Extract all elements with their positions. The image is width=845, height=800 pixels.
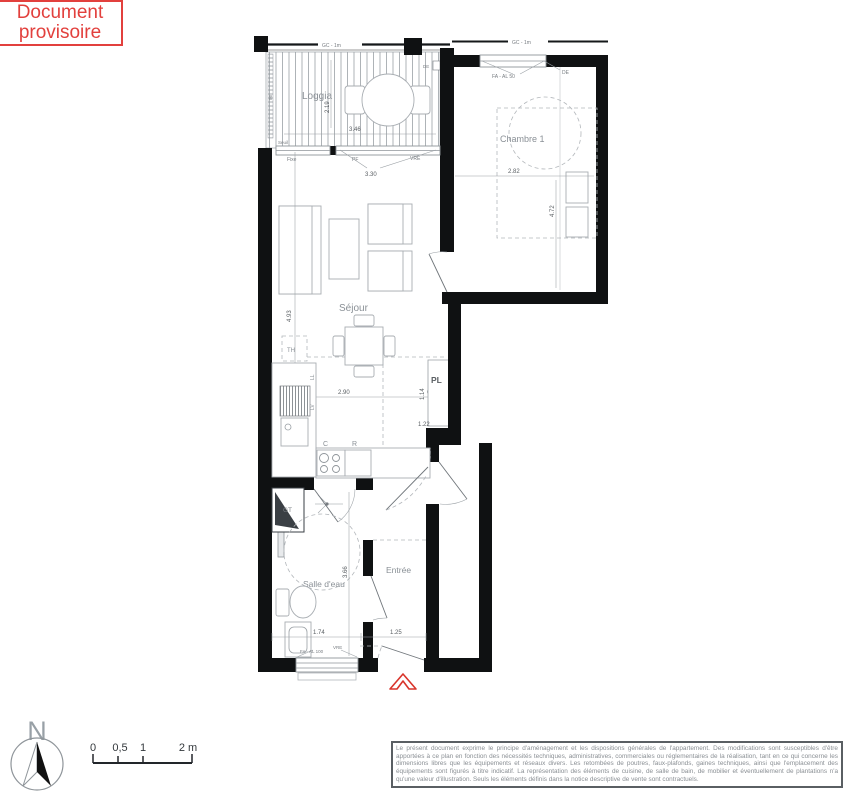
dim-sejour-height: 4.93 bbox=[287, 310, 293, 322]
sdb-window-label: FA - AL 100 bbox=[300, 649, 324, 654]
de-label-loggia: DE bbox=[423, 64, 429, 69]
dim-chambre-width: 2.82 bbox=[508, 169, 520, 175]
north-needle bbox=[37, 742, 51, 786]
guardrail-label-2: GC - 1m bbox=[512, 40, 531, 46]
window-sill bbox=[298, 673, 356, 680]
loggia: GC - 1m Loggia 2.19 3.46 Seuil 86 DE bbox=[256, 40, 450, 148]
fridge bbox=[345, 450, 371, 476]
room-label-loggia: Loggia bbox=[302, 91, 332, 102]
cooktop-label: C bbox=[323, 441, 328, 448]
technical-duct: GT bbox=[272, 488, 355, 532]
gt-label: GT bbox=[283, 507, 292, 514]
scale-2m: 2 m bbox=[179, 742, 197, 754]
dim-sdb-height: 3.66 bbox=[343, 566, 349, 578]
dining-chair bbox=[384, 336, 395, 356]
dining-chair bbox=[354, 315, 374, 326]
ll-label: LL bbox=[310, 374, 316, 380]
dining-chair bbox=[333, 336, 344, 356]
wardrobe bbox=[566, 207, 588, 237]
north-label: N bbox=[27, 716, 47, 746]
pl-label: PL bbox=[431, 375, 442, 385]
scale-bar: 0 0,5 1 2 m bbox=[90, 742, 197, 763]
entrance-arrow bbox=[390, 674, 416, 689]
chambre-window-label: FA - AL 50 bbox=[492, 74, 515, 80]
dim-chambre-height: 4.72 bbox=[550, 205, 556, 217]
room-label-entree: Entrée bbox=[386, 565, 411, 575]
vre-label: VRE bbox=[410, 156, 421, 162]
sdb-window bbox=[296, 658, 358, 672]
toilet-bowl bbox=[290, 586, 316, 618]
cooktop bbox=[317, 450, 345, 476]
coffee-table bbox=[329, 219, 359, 279]
scale-0: 0 bbox=[90, 742, 96, 754]
dim-pl-below: 1.22 bbox=[418, 422, 430, 428]
clearance-circle bbox=[509, 97, 581, 169]
scale-05: 0,5 bbox=[112, 742, 127, 754]
legal-disclaimer: Le présent document exprime le principe … bbox=[391, 741, 843, 788]
dim-sdb-width: 1.74 bbox=[313, 630, 325, 636]
washing-machine bbox=[280, 386, 310, 416]
armchair-seat bbox=[368, 251, 403, 291]
room-label-sejour: Séjour bbox=[339, 303, 369, 314]
vre-label-sdb: VRE bbox=[333, 645, 342, 650]
loggia-table bbox=[362, 74, 414, 126]
kitchen-sink bbox=[281, 418, 308, 446]
pf-label: PF bbox=[352, 157, 358, 163]
guardrail-label: GC - 1m bbox=[322, 43, 341, 49]
dining-table bbox=[345, 327, 383, 365]
dim-loggia-depth: 2.19 bbox=[325, 101, 331, 113]
armchair-seat bbox=[368, 204, 403, 244]
disclaimer-text: Le présent document exprime le principe … bbox=[396, 745, 838, 783]
dining-chair bbox=[354, 366, 374, 377]
north-compass: N bbox=[11, 716, 63, 790]
dim-pl-side: 1.14 bbox=[420, 388, 426, 400]
rail-height-label: 86 bbox=[268, 94, 273, 100]
chambre-1: FA - AL 50 DE Chambre 1 2.82 4.72 bbox=[429, 61, 597, 292]
th-label: TH bbox=[287, 348, 295, 354]
lv-label: LV bbox=[310, 404, 316, 410]
de-label: DE bbox=[562, 70, 570, 76]
kitchen: LL LV C R bbox=[272, 363, 430, 478]
room-label-chambre: Chambre 1 bbox=[500, 134, 545, 144]
floor-plan-svg: GC - 1m Loggia 2.19 3.46 Seuil 86 DE bbox=[0, 0, 845, 800]
seuil-label: Seuil bbox=[278, 140, 288, 145]
wardrobe bbox=[566, 172, 588, 203]
toilet-tank bbox=[276, 589, 289, 616]
floor-plan-page: Document provisoire GC - 1m bbox=[0, 0, 845, 800]
dim-kitchen-width: 2.90 bbox=[338, 390, 350, 396]
sofa-seat bbox=[279, 206, 312, 294]
dim-loggia-width: 3.46 bbox=[349, 127, 361, 133]
dim-sejour-window: 3.30 bbox=[365, 172, 377, 178]
dim-entree-width: 1.25 bbox=[390, 630, 402, 636]
scale-1: 1 bbox=[140, 742, 146, 754]
fridge-label: R bbox=[352, 441, 357, 448]
